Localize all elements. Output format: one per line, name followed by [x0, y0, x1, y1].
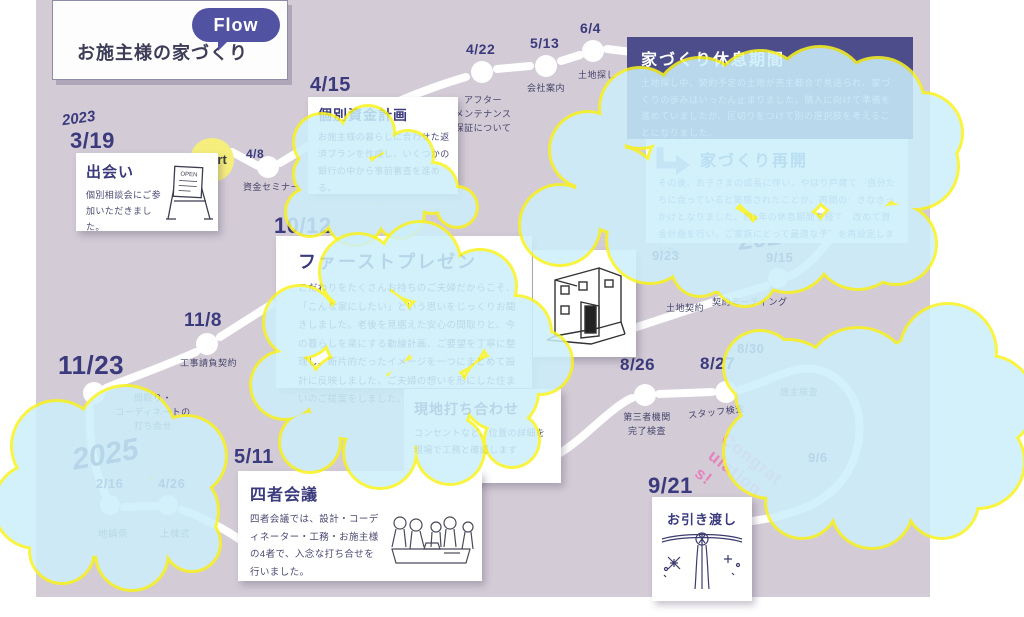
cloud [284, 104, 479, 247]
cloud-overlays [0, 0, 1024, 617]
cloud [249, 220, 574, 490]
cloud [722, 302, 1024, 550]
cloud [518, 45, 964, 308]
cloud [0, 384, 228, 592]
